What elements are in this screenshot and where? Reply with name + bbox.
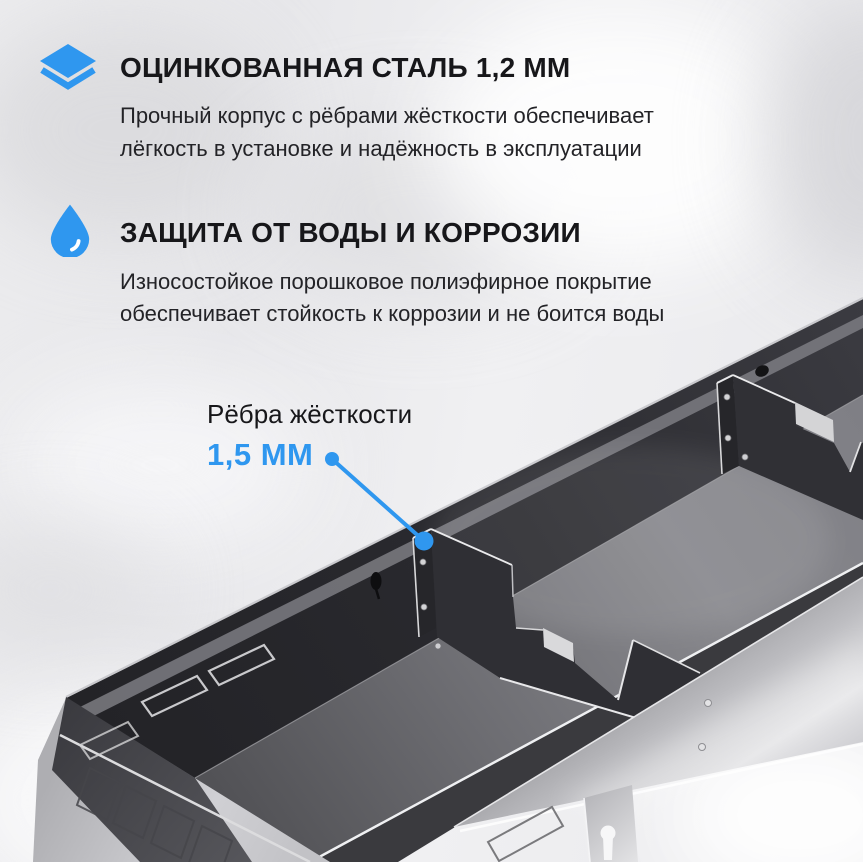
- feature-description-line: обеспечивает стойкость к коррозии и не б…: [120, 301, 664, 327]
- mounting-hole: [371, 572, 382, 590]
- water-drop-icon: [47, 202, 93, 257]
- product-image: [0, 0, 863, 862]
- layers-icon: [38, 40, 98, 92]
- rivet: [724, 394, 730, 400]
- callout-pointer: [325, 452, 434, 551]
- feature-title: ЗАЩИТА ОТ ВОДЫ И КОРРОЗИИ: [120, 217, 581, 249]
- callout-label: Рёбра жёсткости: [207, 399, 412, 430]
- rivet: [725, 435, 731, 441]
- rivet: [705, 700, 712, 707]
- feature-description-line: Износостойкое порошковое полиэфирное пок…: [120, 269, 652, 295]
- rivet: [421, 604, 427, 610]
- callout-value: 1,5 ММ: [207, 437, 313, 473]
- callout-dot: [325, 452, 339, 466]
- rivet: [742, 454, 748, 460]
- feature-title: ОЦИНКОВАННАЯ СТАЛЬ 1,2 ММ: [120, 52, 570, 84]
- keyhole-tab: [584, 785, 638, 862]
- feature-description-line: Прочный корпус с рёбрами жёсткости обесп…: [120, 103, 654, 129]
- rivet: [699, 744, 706, 751]
- product-infographic: ОЦИНКОВАННАЯ СТАЛЬ 1,2 ММ Прочный корпус…: [0, 0, 863, 862]
- callout-dot: [415, 532, 434, 551]
- rivet: [435, 643, 441, 649]
- feature-description-line: лёгкость в установке и надёжность в эксп…: [120, 136, 642, 162]
- rivet: [420, 559, 426, 565]
